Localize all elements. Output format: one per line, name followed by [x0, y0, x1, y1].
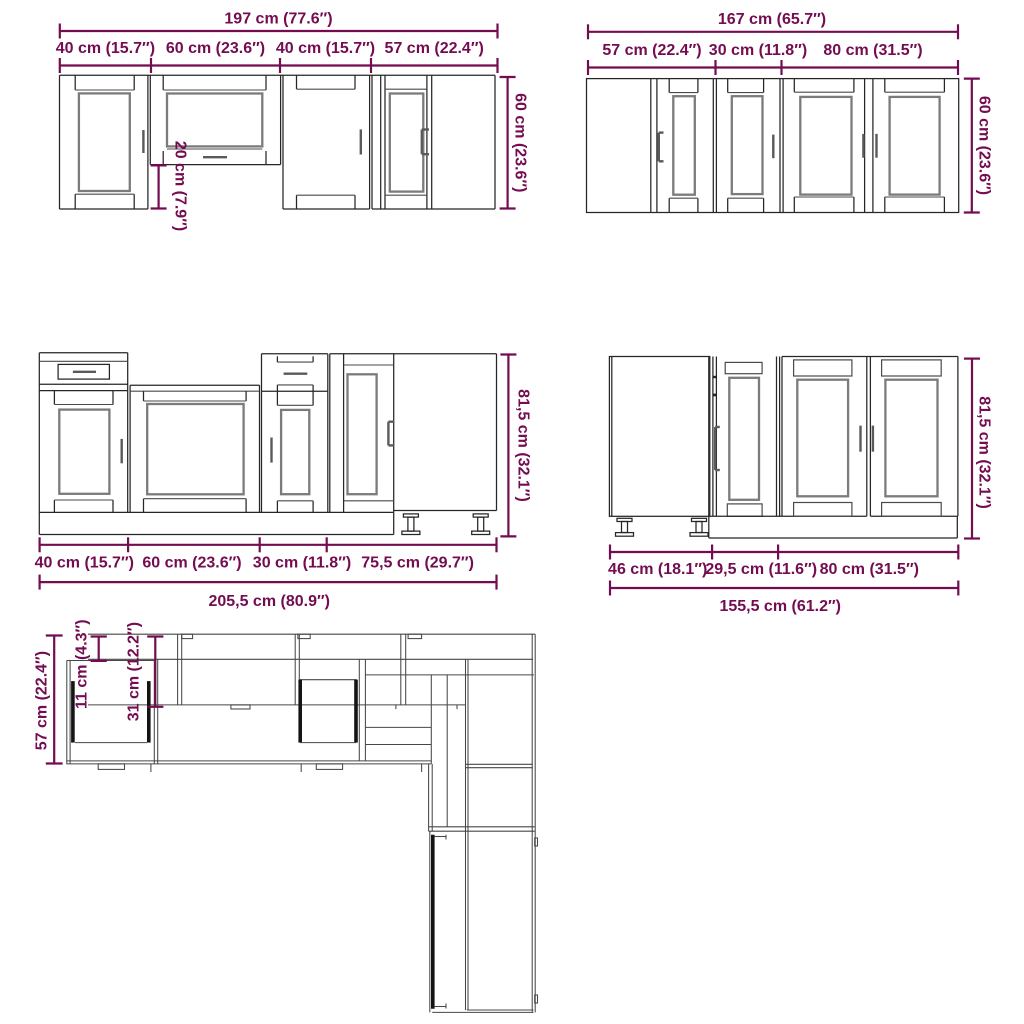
svg-text:40 cm (15.7″): 40 cm (15.7″): [56, 40, 155, 57]
svg-text:57 cm (22.4″): 57 cm (22.4″): [385, 40, 484, 57]
svg-text:11 cm (4.3″): 11 cm (4.3″): [73, 619, 90, 709]
svg-text:60 cm (23.6″): 60 cm (23.6″): [512, 93, 529, 192]
svg-text:81,5 cm (32.1″): 81,5 cm (32.1″): [976, 396, 993, 509]
svg-text:80 cm (31.5″): 80 cm (31.5″): [823, 42, 922, 59]
svg-text:46 cm (18.1″): 46 cm (18.1″): [608, 561, 707, 578]
svg-text:60 cm (23.6″): 60 cm (23.6″): [166, 40, 265, 57]
svg-text:31 cm (12.2″): 31 cm (12.2″): [125, 622, 142, 721]
svg-text:205,5 cm (80.9″): 205,5 cm (80.9″): [208, 593, 330, 610]
svg-text:155,5 cm (61.2″): 155,5 cm (61.2″): [719, 598, 841, 615]
svg-text:57 cm (22.4″): 57 cm (22.4″): [602, 42, 701, 59]
svg-text:20 cm (7.9″): 20 cm (7.9″): [172, 141, 189, 231]
svg-text:197 cm (77.6″): 197 cm (77.6″): [224, 11, 332, 28]
svg-text:57 cm (22.4″): 57 cm (22.4″): [34, 651, 51, 750]
svg-text:81,5 cm (32.1″): 81,5 cm (32.1″): [515, 389, 532, 502]
svg-text:40 cm (15.7″): 40 cm (15.7″): [35, 554, 134, 571]
svg-text:40 cm (15.7″): 40 cm (15.7″): [276, 40, 375, 57]
svg-text:80 cm (31.5″): 80 cm (31.5″): [820, 561, 919, 578]
svg-text:30 cm (11.8″): 30 cm (11.8″): [253, 554, 351, 571]
svg-text:75,5 cm (29.7″): 75,5 cm (29.7″): [361, 554, 474, 571]
svg-text:167 cm (65.7″): 167 cm (65.7″): [718, 11, 826, 28]
svg-text:29,5 cm (11.6″): 29,5 cm (11.6″): [705, 561, 817, 578]
svg-text:30 cm (11.8″): 30 cm (11.8″): [709, 42, 807, 59]
svg-text:60 cm (23.6″): 60 cm (23.6″): [976, 96, 993, 195]
svg-text:60 cm (23.6″): 60 cm (23.6″): [142, 554, 241, 571]
